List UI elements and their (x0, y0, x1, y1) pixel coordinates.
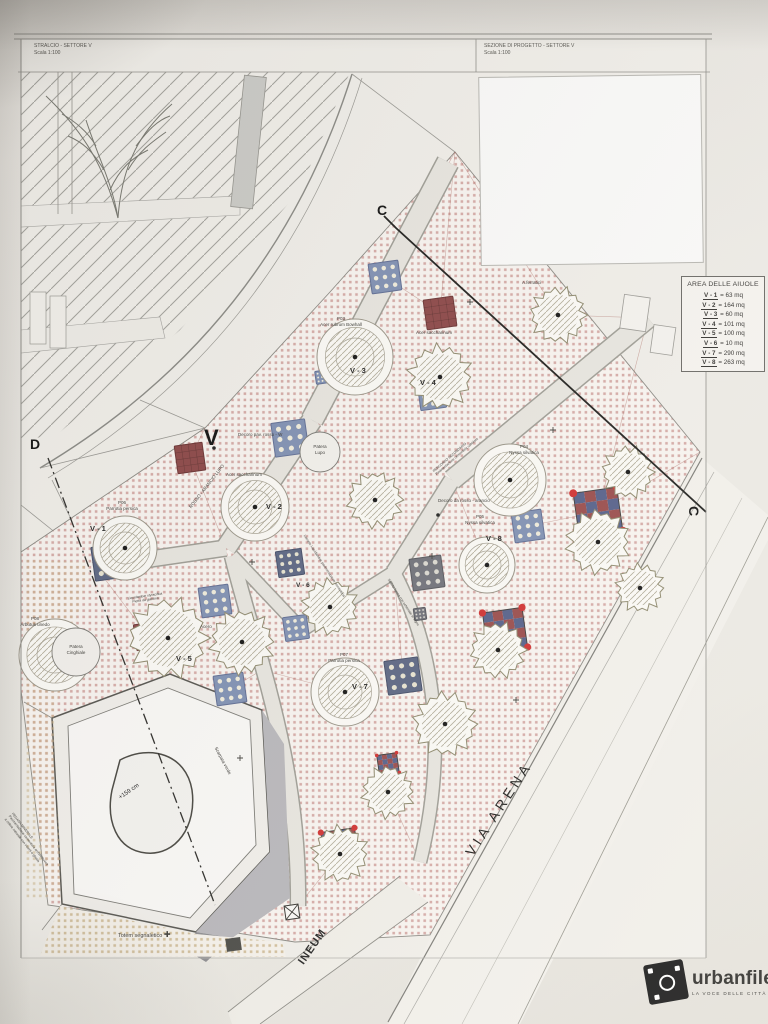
label-v1: V - 1 (90, 524, 106, 533)
legend-row: V - 3 = 60 mq (685, 311, 761, 318)
legend-row: V - 5 = 100 mq (685, 330, 761, 337)
legend-row: V - 1 = 63 mq (685, 292, 761, 299)
urbanfile-logo-text: urbanfile (692, 968, 768, 990)
legend-row: V - 7 = 290 mq (685, 350, 761, 357)
label-p03: P03Acer rubrum Bowhall (308, 316, 374, 327)
label-p07: P07Parrotia persica (316, 652, 372, 663)
label-patera-cinghiale: PateraCinghiale (58, 644, 94, 655)
label-v6: V - 6 (296, 582, 310, 590)
label-v7: V - 7 (352, 682, 368, 691)
sector-v-mark: V (204, 424, 219, 452)
label-v4: V - 4 (420, 378, 436, 387)
label-tree-topright: A.ferratici (522, 280, 541, 286)
urbanfile-tagline: LA VOCE DELLE CITTÀ (692, 991, 768, 996)
legend-area-aiuole: AREA DELLE AIUOLE V - 1 = 63 mq V - 2 = … (681, 276, 765, 372)
title-block-right: SEZIONE DI PROGETTO - SETTORE VScala 1:1… (484, 43, 574, 57)
legend-row: V - 2 = 164 mq (685, 302, 761, 309)
legend-row: V - 6 = 10 mq (685, 340, 761, 347)
label-acer-top: Acer saccharinum (416, 330, 452, 336)
plan-drawing (0, 0, 768, 1024)
section-mark-c-top: C (377, 202, 387, 220)
label-p08: P08Arbutus unedo (10, 616, 60, 627)
legend-title: AREA DELLE AIUOLE (685, 281, 761, 288)
urbanfile-logo: urbanfile LA VOCE DELLE CITTÀ (646, 962, 768, 1002)
site-plan-photo: STRALCIO - SETTORE VScala 1:100 SEZIONE … (0, 0, 768, 1024)
label-v2: V - 2 (266, 502, 282, 511)
section-mark-c-bottom: C (685, 506, 703, 516)
label-patera-lupo: PateraLupo (306, 444, 334, 455)
label-p05: P05Nyssa silvatica (452, 514, 508, 525)
label-acer-mid: Acer saccharinum (226, 472, 262, 478)
label-totem: Totem segnaletico ✚ (118, 930, 171, 940)
label-note2: Decoro da rosso - arancio (438, 498, 490, 504)
legend-row: V - 8 = 263 mq (685, 359, 761, 366)
label-p04: P04Nyssa silvatica (496, 444, 552, 455)
section-mark-d: D (30, 436, 40, 454)
blank-panel (479, 74, 704, 265)
label-note1: Decoro pav. rosso - W (238, 432, 282, 438)
cross-mark-icon: ✚ (164, 930, 171, 939)
legend-row: V - 4 = 101 mq (685, 321, 761, 328)
label-acero: Acero (200, 624, 212, 630)
label-v3: V - 3 (350, 366, 366, 375)
urbanfile-logo-icon (643, 959, 689, 1005)
label-v8: V - 8 (486, 534, 502, 543)
label-v5: V - 5 (176, 654, 192, 663)
label-p06: P06Parrotia persica (92, 500, 152, 511)
title-block-left: STRALCIO - SETTORE VScala 1:100 (34, 43, 92, 57)
